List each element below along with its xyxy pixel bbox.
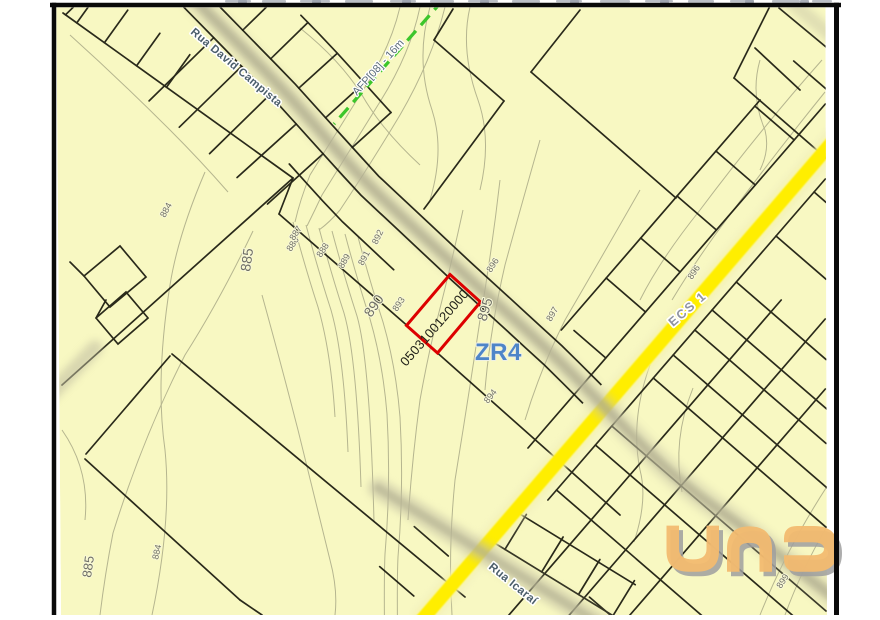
- svg-text:ZR4: ZR4: [475, 339, 522, 366]
- svg-text:885: 885: [79, 555, 97, 579]
- svg-text:885: 885: [237, 247, 256, 273]
